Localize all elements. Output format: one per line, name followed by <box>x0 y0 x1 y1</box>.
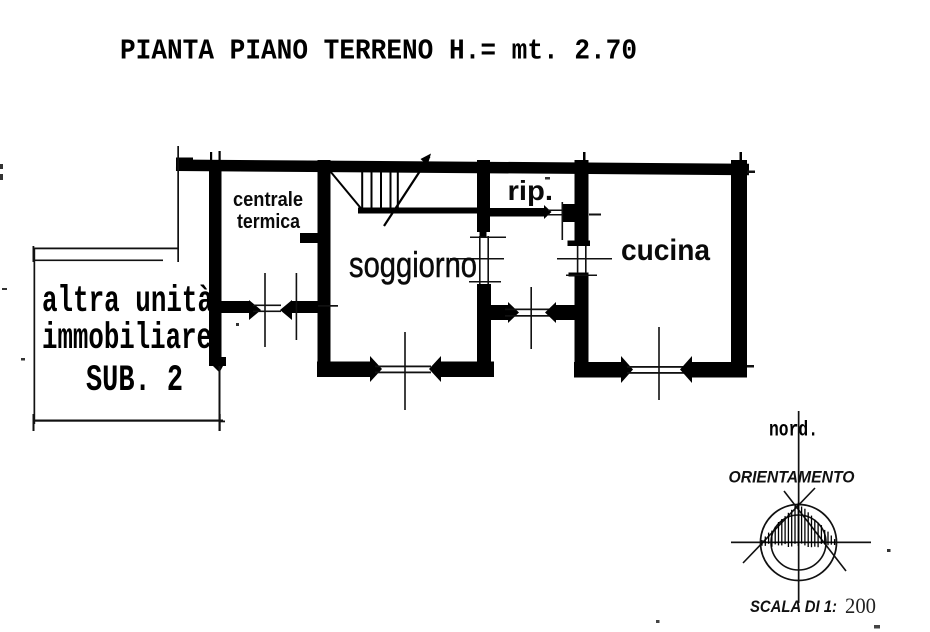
svg-text:rip.: rip. <box>508 175 554 206</box>
svg-text:PIANTA PIANO TERRENO H.= mt. 2: PIANTA PIANO TERRENO H.= mt. 2.70 <box>120 35 637 68</box>
svg-text:SCALA DI 1:: SCALA DI 1: <box>750 598 837 616</box>
svg-text:immobiliare: immobiliare <box>42 318 212 360</box>
svg-text:200: 200 <box>845 593 876 618</box>
svg-text:nord.: nord. <box>769 420 818 443</box>
svg-text:SUB. 2: SUB. 2 <box>86 360 183 402</box>
svg-text:soggiorno: soggiorno <box>349 244 477 285</box>
svg-text:altra unità: altra unità <box>42 281 213 323</box>
svg-text:centrale: centrale <box>233 189 303 211</box>
svg-text:ORIENTAMENTO: ORIENTAMENTO <box>729 469 855 487</box>
svg-text:termica: termica <box>237 211 301 233</box>
svg-text:cucina: cucina <box>621 234 710 267</box>
